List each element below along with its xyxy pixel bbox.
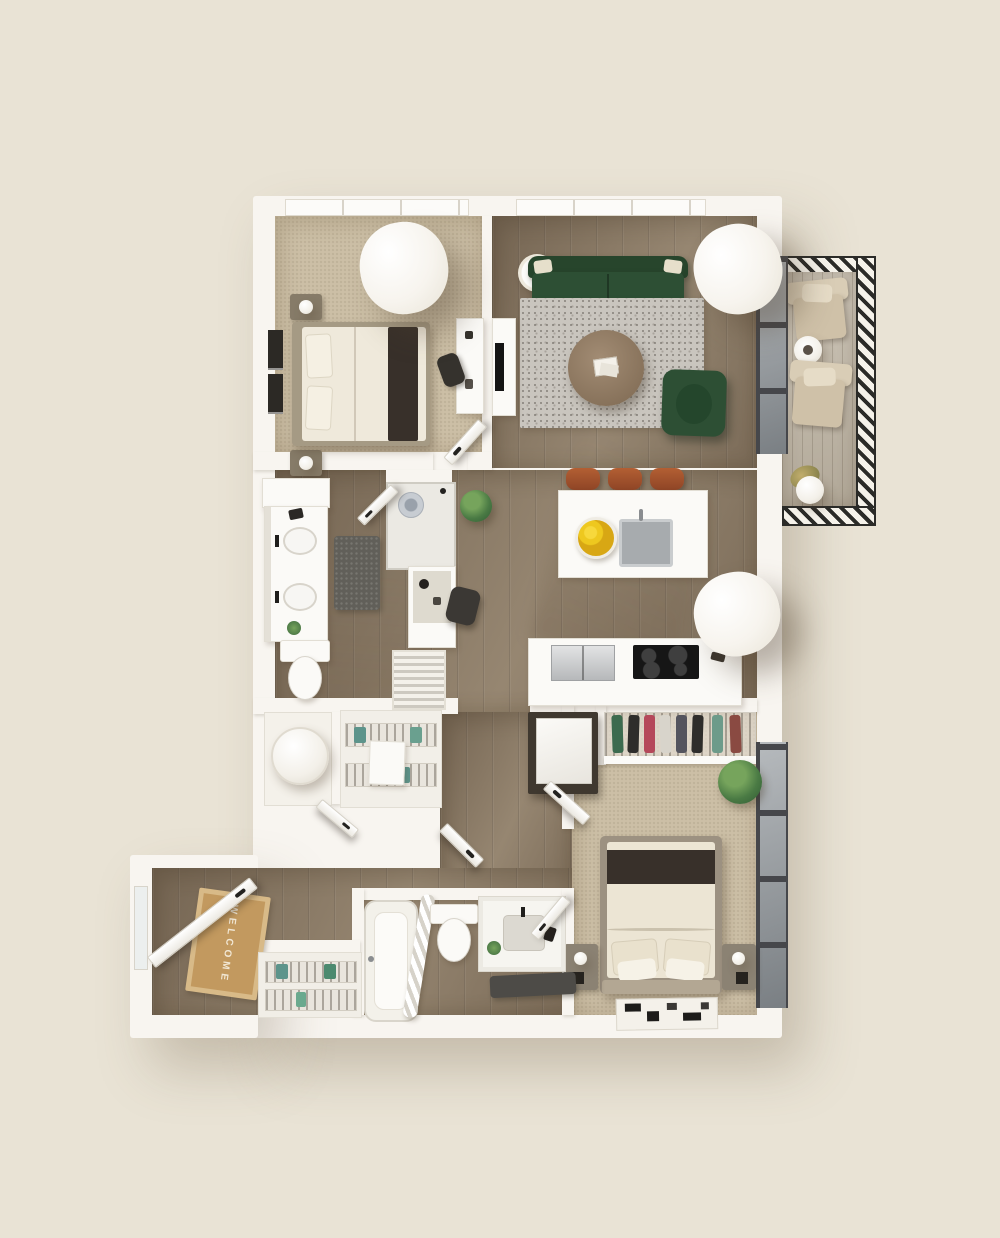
table-top-detail (803, 345, 813, 355)
makeup-items (433, 597, 441, 605)
vanity-accessories (288, 508, 304, 521)
toilet (280, 640, 328, 700)
bath2-dark-mat (489, 972, 576, 998)
balcony-railing-right (856, 256, 876, 526)
bedroom1-window (285, 199, 469, 216)
lounge-chair (785, 359, 853, 432)
throw-pillow (533, 259, 553, 274)
pillow (305, 385, 333, 430)
teal-towels (354, 727, 366, 743)
bed-queen (292, 322, 430, 446)
entry-sidelight-window (134, 886, 148, 970)
refrigerator (551, 645, 615, 681)
black-faucet (521, 907, 525, 917)
water-heater-closet (264, 712, 332, 806)
wall-bedroom1-south-b (468, 452, 492, 470)
wall-art-frame (268, 330, 283, 370)
wall-above-shower (386, 470, 452, 482)
folded-blanket (607, 850, 715, 884)
floor-plan-canvas: WELCOME (0, 0, 1000, 1238)
table-lamp (299, 456, 313, 470)
entry-closet (258, 952, 362, 1018)
teal-towels (276, 964, 288, 979)
table-lamp (574, 952, 587, 965)
hanging-clothes (644, 715, 655, 753)
double-sink-vanity (264, 506, 328, 642)
small-frame (736, 972, 748, 984)
water-heater (271, 727, 329, 785)
tv-screen (495, 343, 504, 391)
toilet-bowl (437, 918, 471, 962)
duvet-fold-line (354, 327, 356, 441)
bed2-queen (600, 836, 722, 994)
washer-dryer-closet (528, 712, 598, 794)
hanging-clothes (691, 715, 703, 753)
wall-bedroom1-south-a (253, 452, 433, 470)
wall-art-frame (268, 374, 283, 414)
table-lamp (732, 952, 745, 965)
hanging-clothes (712, 715, 723, 753)
door-handle (552, 789, 562, 799)
sink-faucet (639, 509, 643, 521)
stacked-washer-dryer (536, 718, 592, 784)
hanging-clothes (627, 715, 639, 753)
footboard-bench (602, 980, 720, 994)
chair-pillow (803, 367, 836, 386)
door-handle (465, 849, 475, 859)
hanging-clothes (611, 715, 623, 753)
table-lamp (299, 300, 313, 314)
rug-pattern-block (701, 1002, 709, 1009)
round-coffee-table (568, 330, 644, 406)
toilet (430, 904, 476, 962)
tv-console (492, 318, 516, 416)
bath-shag-mat (334, 536, 380, 610)
shower-drain (398, 492, 424, 518)
folded-blanket (388, 327, 418, 441)
sink-basin (283, 527, 317, 555)
door-handle (342, 822, 351, 830)
black-faucet (275, 535, 279, 547)
lounge-chair (785, 277, 853, 345)
throw-pillow (663, 259, 683, 274)
bar-stool (650, 468, 684, 490)
door-handle (452, 446, 462, 456)
bathroom-plant (460, 490, 492, 522)
tub-basin (374, 912, 408, 1010)
living-room-window (516, 199, 706, 216)
bar-stool (608, 468, 642, 490)
pillow (617, 958, 657, 982)
door-handle (365, 510, 373, 518)
desk-items (465, 331, 473, 339)
patterned-rug (616, 997, 719, 1031)
nightstand (290, 450, 322, 476)
vanity-plant (287, 621, 301, 635)
rug-pattern-block (625, 1003, 641, 1011)
wire-shelf (265, 961, 357, 983)
armchair-seat-cushion (675, 383, 712, 424)
green-armchair (661, 369, 727, 437)
black-faucet (275, 591, 279, 603)
lemon-bowl (575, 517, 617, 559)
bar-stool (566, 468, 600, 490)
vanity-plant (487, 941, 501, 955)
storage-box (368, 740, 406, 785)
makeup-items (419, 579, 429, 589)
chair-pillow (802, 284, 833, 303)
balcony-railing-bottom (782, 506, 876, 526)
wire-shelf (265, 989, 357, 1011)
linen-closet (340, 710, 442, 808)
hanging-clothes (729, 715, 741, 753)
pillow (305, 333, 333, 378)
nightstand (722, 944, 756, 990)
kitchen-island (558, 490, 708, 578)
teal-towels (324, 964, 336, 979)
pillow (665, 958, 705, 982)
nightstand (290, 294, 322, 320)
sink-basin (283, 583, 317, 611)
cooktop-range (633, 645, 699, 679)
duvet-fold-curve (607, 928, 715, 931)
hanging-clothes (659, 715, 671, 753)
walk-in-shower (386, 482, 456, 570)
shower-head (440, 488, 446, 494)
bedroom2-plant (718, 760, 762, 804)
door-handle (538, 923, 546, 932)
rug-pattern-block (647, 1011, 659, 1021)
teal-towels (410, 727, 422, 743)
rug-pattern-block (683, 1012, 701, 1020)
louver-mechanical-closet (392, 650, 446, 710)
toilet-bowl (288, 656, 322, 700)
rug-pattern-block (667, 1003, 677, 1010)
tub-faucet (368, 956, 374, 962)
vanity-mirror-edge (265, 507, 271, 641)
desk-items (465, 379, 473, 389)
door-handle (234, 888, 246, 899)
bath-upper-cabinet (262, 478, 330, 508)
green-bottles (296, 992, 306, 1007)
hanging-clothes (676, 715, 687, 753)
island-sink (619, 519, 673, 567)
bedroom2-closet (604, 712, 756, 764)
balcony-plant-pot (796, 476, 824, 504)
wall-entry-closet-north (258, 940, 360, 952)
